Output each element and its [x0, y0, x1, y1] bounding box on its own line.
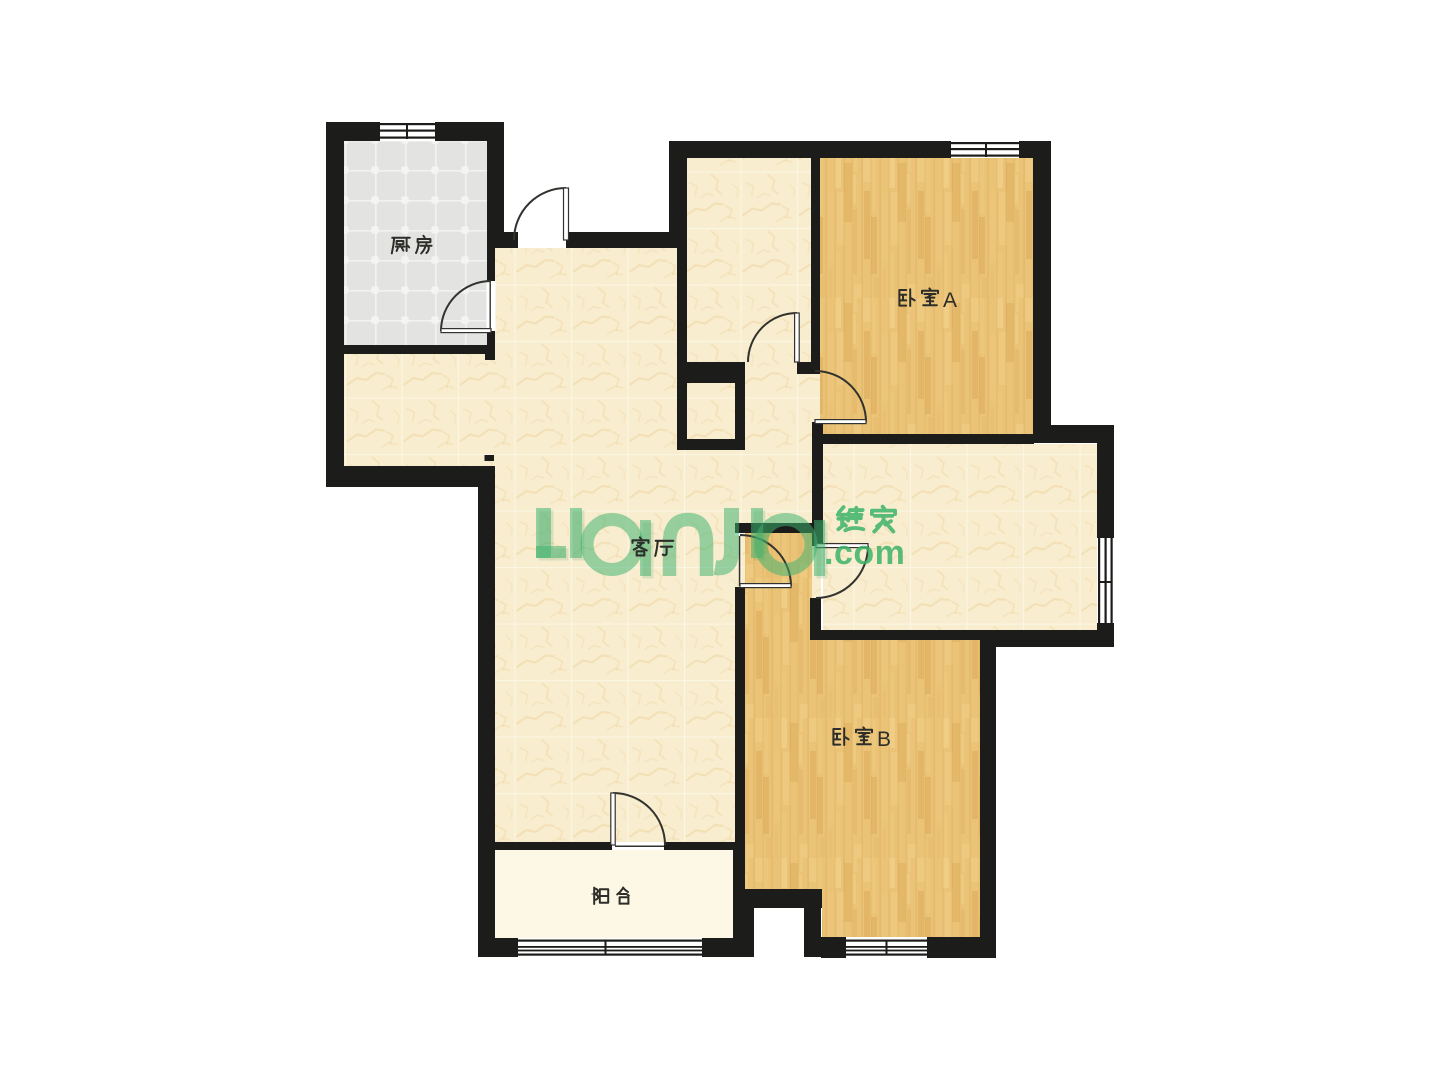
svg-text:B: B [877, 728, 891, 751]
svg-text:A: A [943, 289, 957, 312]
svg-text:.com: .com [824, 534, 905, 572]
